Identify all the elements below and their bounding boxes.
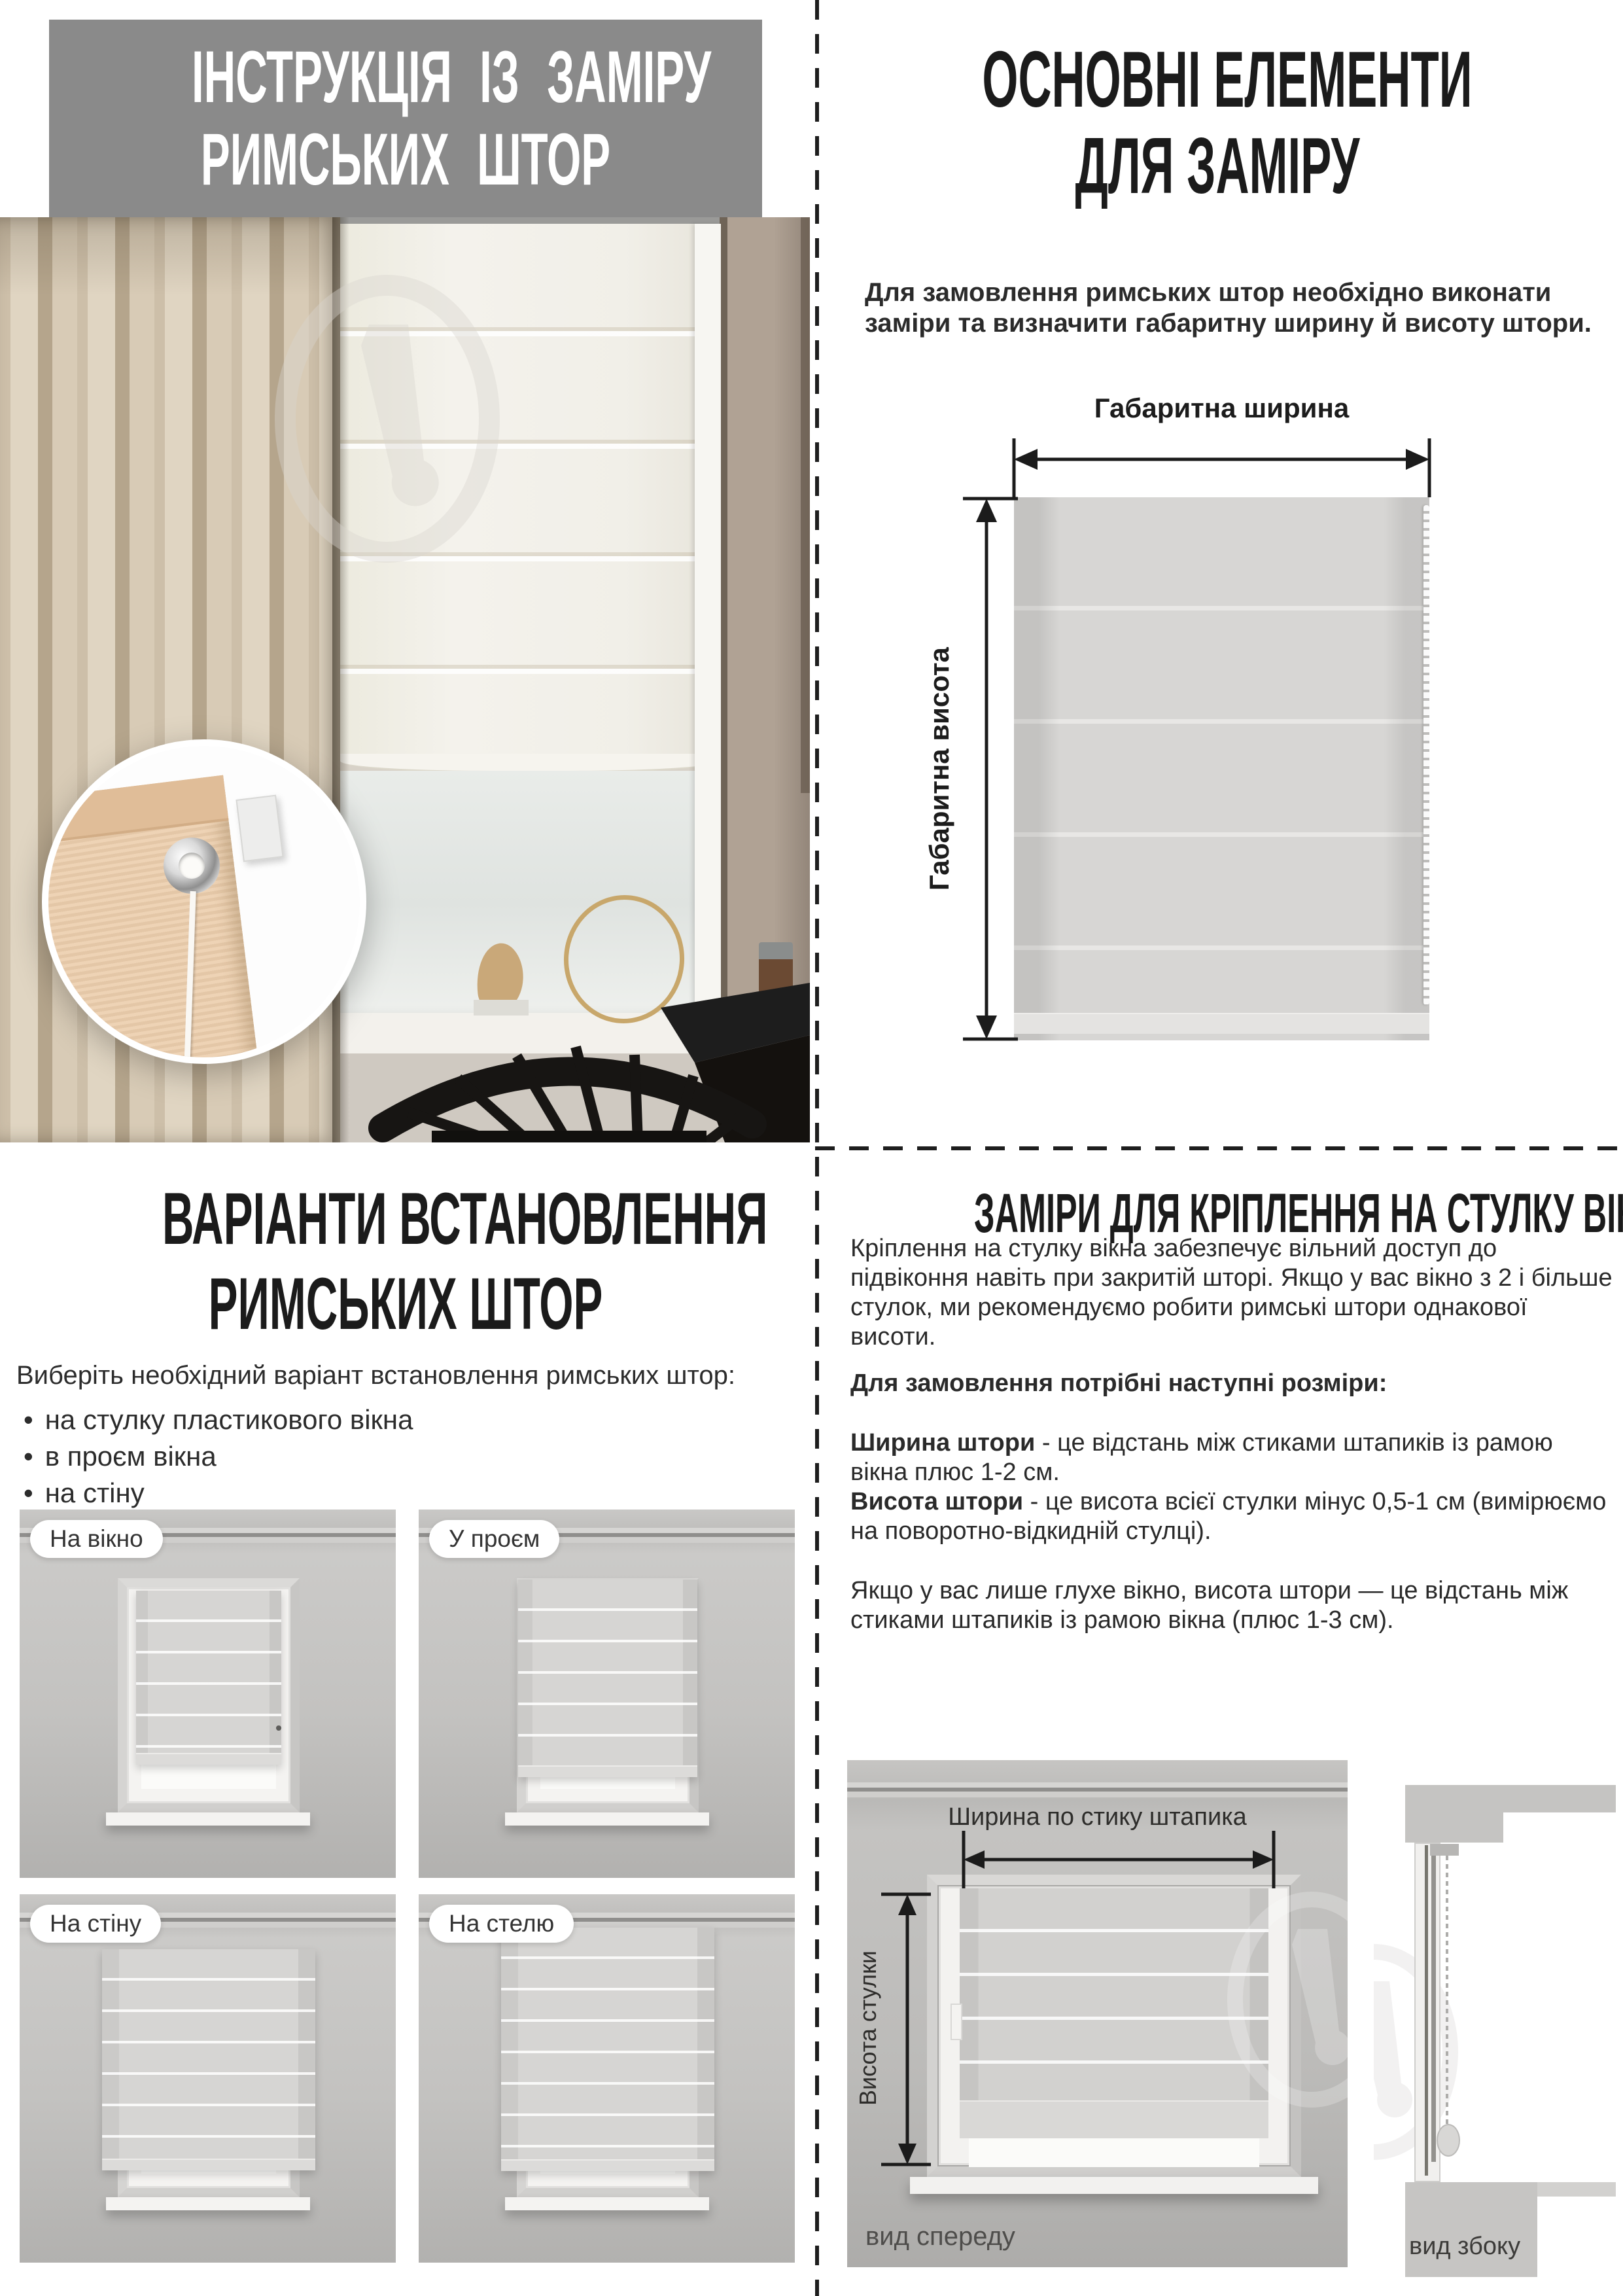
photo-roman-blind (340, 224, 720, 760)
interior-photo (0, 217, 810, 1142)
inset-fabric (42, 775, 264, 1064)
window-frame (526, 1972, 689, 2188)
blind-corner-inset (42, 739, 366, 1064)
blind-diagram (1014, 497, 1429, 1040)
heading-line1: ОСНОВНІ ЕЛЕМЕНТИ (982, 36, 1452, 122)
photo-window-view (340, 771, 712, 1013)
chain-dot (276, 1725, 281, 1731)
variant-label: На вікно (30, 1520, 163, 1558)
sill-section (1405, 2182, 1537, 2277)
blind-headrail (1430, 1844, 1459, 1856)
height-definition: Висота штори - це висота всієї стулки мі… (850, 1487, 1613, 1546)
photo-top-strip (0, 217, 810, 224)
blind-fabric-profile (1431, 1856, 1436, 2162)
photo-wall (720, 217, 810, 1142)
window-frame (526, 1587, 689, 1803)
chain-weight (1437, 2124, 1460, 2157)
watermark-logo (256, 256, 518, 584)
window-sill (505, 1812, 709, 1826)
inset-grommet-hole (179, 853, 205, 879)
list-item: на стулку пластикового вікна (24, 1402, 795, 1438)
roman-blind (501, 1928, 714, 2171)
variants-subtitle: Виберіть необхідний варіант встановлення… (16, 1361, 808, 1390)
sizes-heading: Для замовлення потрібні наступні розміри… (850, 1369, 1613, 1398)
photo-frame-shadow (801, 217, 810, 793)
roman-blind (518, 1580, 697, 1777)
vertical-dashed-divider (815, 0, 819, 2296)
window-frame (127, 1972, 290, 2188)
window-sash-profile (1414, 1843, 1440, 2182)
heading-line2: ДЛЯ ЗАМІРУ (982, 122, 1452, 209)
blind-diagram-hem (1014, 1013, 1429, 1034)
wall-section-top (1405, 1785, 1616, 1812)
window-glass (141, 1602, 276, 1789)
watermark-logo (1213, 1878, 1348, 2123)
window-sill (910, 2177, 1318, 2194)
horizontal-dashed-divider (815, 1146, 1623, 1150)
window-recess (517, 1578, 699, 1812)
variant-image-window: На вікно (20, 1510, 396, 1878)
window-glass (141, 1987, 276, 2174)
page-title-line2: РИМСЬКИХ ШТОР (192, 120, 620, 199)
photo-open-book (724, 1009, 810, 1042)
wall-section-jamb (1405, 1785, 1503, 1843)
variant-image-ceiling: На стелю (419, 1894, 795, 2263)
glazing-bead (1425, 1845, 1428, 2176)
photo-wall-below (307, 1053, 810, 1142)
side-view-caption: вид збоку (1409, 2233, 1520, 2261)
blind-diagram-chain (1423, 505, 1429, 1005)
page-title-line1: ІНСТРУКЦІЯ ІЗ ЗАМІРУ (192, 38, 620, 116)
overall-width-label: Габаритна ширина (1014, 393, 1429, 424)
roman-blind (102, 1949, 315, 2170)
sash-intro-paragraph: Кріплення на стулку вікна забезпечує віл… (850, 1234, 1613, 1352)
title-banner: ІНСТРУКЦІЯ ІЗ ЗАМІРУ РИМСЬКИХ ШТОР (49, 20, 762, 217)
window-frame (127, 1587, 290, 1803)
width-definition: Ширина штори - це відстань між стиками ш… (850, 1428, 1613, 1487)
window-glass (969, 2138, 1259, 2167)
list-item: в проєм вікна (24, 1438, 795, 1475)
window-handle (951, 2004, 962, 2040)
crown-molding (847, 1782, 1348, 1797)
blind-chain (1446, 1856, 1448, 2138)
side-view-diagram: вид збоку (1374, 1760, 1621, 2277)
photo-window-sill (307, 1013, 810, 1053)
variants-heading-line2: РИМСЬКИХ ШТОР (162, 1262, 649, 1347)
overall-height-label: Габаритна висота (918, 497, 960, 1040)
roman-blind (960, 1888, 1268, 2138)
front-view-diagram: Ширина по стику штапика Висота стулки ви… (847, 1760, 1348, 2267)
photo-pen-cup (759, 942, 793, 993)
window-sill (106, 1812, 310, 1826)
front-view-arrows (847, 1760, 1348, 2267)
inset-bracket (236, 795, 283, 862)
window-recess (927, 1875, 1301, 2177)
roman-blind (136, 1591, 281, 1765)
watermark-logo (1374, 1930, 1472, 2176)
photo-gold-ring (559, 891, 688, 1027)
variant-label: У проєм (429, 1520, 559, 1558)
front-view-caption: вид спереду (865, 2222, 1015, 2252)
window-recess (517, 1963, 699, 2197)
deaf-window-note: Якщо у вас лише глухе вікно, висота штор… (850, 1576, 1613, 1635)
sash-measure-text: Кріплення на стулку вікна забезпечує віл… (850, 1234, 1613, 1652)
sash-width-label: Ширина по стику штапика (847, 1803, 1348, 1831)
variant-label: На стіну (30, 1905, 161, 1943)
section-heading-elements: ОСНОВНІ ЕЛЕМЕНТИ ДЛЯ ЗАМІРУ (812, 36, 1623, 209)
window-sill (505, 2197, 709, 2210)
inset-header-band (42, 775, 229, 849)
window-recess (118, 1578, 300, 1812)
photo-blind-hem (340, 754, 720, 773)
variant-image-wall: На стіну (20, 1894, 396, 2263)
section-heading-variants: ВАРІАНТИ ВСТАНОВЛЕННЯ РИМСЬКИХ ШТОР (0, 1176, 811, 1347)
window-glass (540, 1602, 675, 1789)
list-item: на стіну (24, 1475, 795, 1511)
variants-heading-line1: ВАРІАНТИ ВСТАНОВЛЕННЯ (162, 1176, 649, 1262)
intro-paragraph: Для замовлення римських штор необхідно в… (865, 277, 1604, 339)
window-glass (540, 1987, 675, 2174)
photo-sculpture (473, 942, 527, 1014)
window-sill (106, 2197, 310, 2210)
window-frame (939, 1886, 1289, 2165)
sill-surface (1405, 2182, 1616, 2197)
photo-sculpture-base (474, 1000, 529, 1016)
photo-curtain-shadow (332, 217, 349, 1142)
variant-image-recess: У проєм (419, 1510, 795, 1878)
sash-height-label: Висота стулки (850, 1898, 886, 2159)
instruction-leaflet: ІНСТРУКЦІЯ ІЗ ЗАМІРУ РИМСЬКИХ ШТОР (0, 0, 1623, 2296)
photo-window-frame (695, 224, 721, 1013)
window-recess (118, 1963, 300, 2197)
variant-label: На стелю (429, 1905, 574, 1943)
